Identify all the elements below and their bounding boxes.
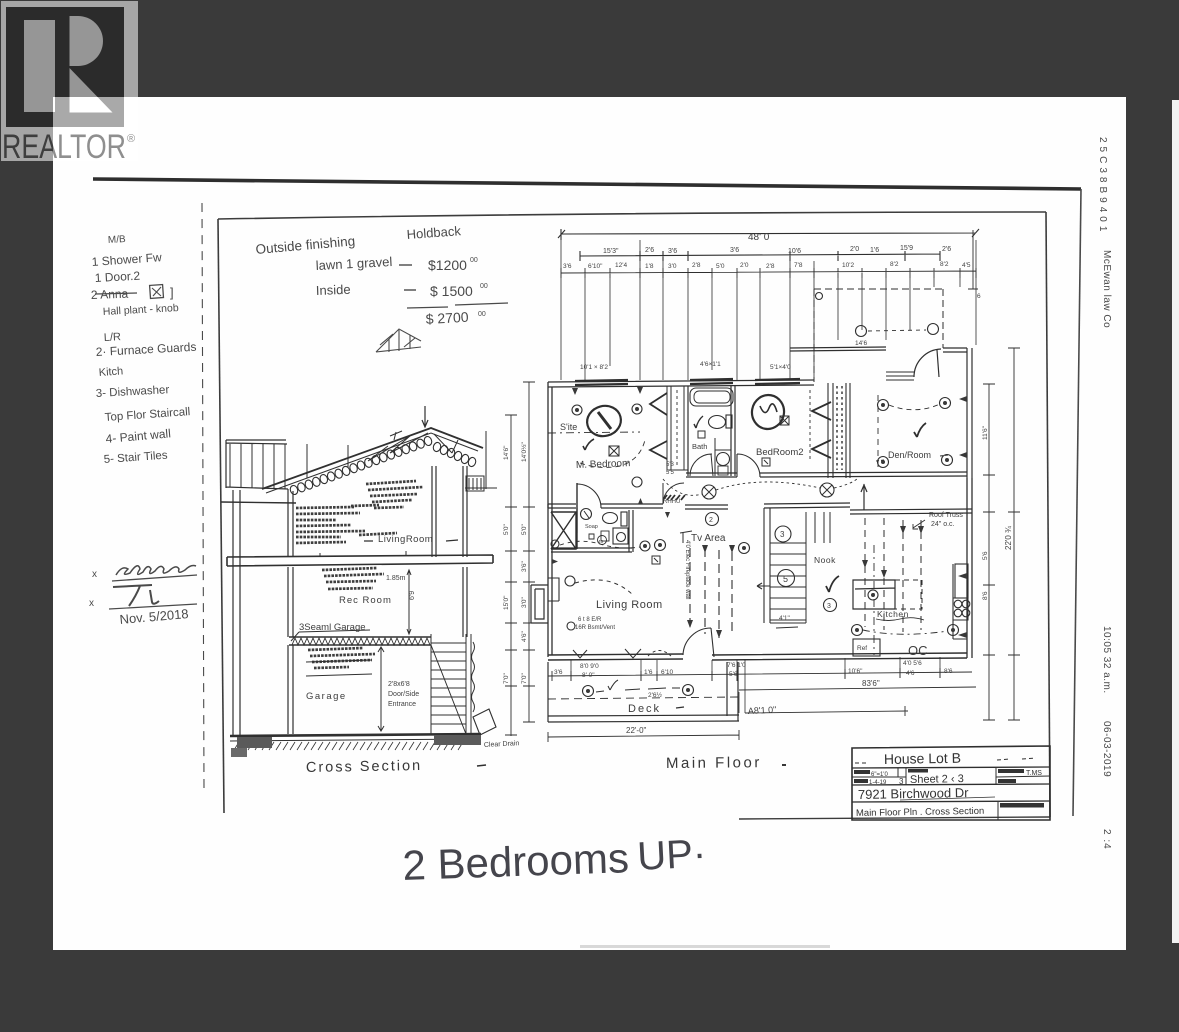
svg-text:Den/Room: Den/Room <box>888 450 931 460</box>
svg-text:14'6: 14'6 <box>855 340 867 347</box>
svg-text:4'1": 4'1" <box>779 615 790 622</box>
svg-text:2'6: 2'6 <box>645 247 654 254</box>
svg-text:Cross Section: Cross Section <box>306 758 423 776</box>
svg-text:5'0": 5'0" <box>503 524 510 535</box>
svg-text:14'0½": 14'0½" <box>520 441 528 462</box>
svg-text:UP·: UP· <box>636 831 707 879</box>
svg-text:83'6": 83'6" <box>862 679 880 688</box>
svg-text:8'2: 8'2 <box>890 261 899 268</box>
svg-text:8'6: 8'6 <box>944 668 953 675</box>
svg-text:6'9: 6'9 <box>409 591 416 600</box>
svg-text:24" o.c.: 24" o.c. <box>931 521 955 528</box>
svg-text:Sheet 2 ‹ 3: Sheet 2 ‹ 3 <box>910 773 964 786</box>
svg-text:4'6: 4'6 <box>906 670 915 677</box>
svg-text:10'1 × 8'2: 10'1 × 8'2 <box>580 364 608 371</box>
svg-text:2'8: 2'8 <box>766 263 775 270</box>
svg-text:12'4: 12'4 <box>615 262 627 269</box>
svg-text:A8'1 0": A8'1 0" <box>748 705 777 716</box>
svg-text:$ 1500: $ 1500 <box>430 283 473 299</box>
svg-text:8'2: 8'2 <box>940 261 949 268</box>
svg-text:Garage: Garage <box>306 691 347 702</box>
svg-text:2: 2 <box>709 517 713 524</box>
svg-text:3'6: 3'6 <box>554 669 563 676</box>
svg-text:00: 00 <box>470 257 478 264</box>
svg-text:2'6½: 2'6½ <box>648 691 662 699</box>
svg-text:5: 5 <box>783 574 788 584</box>
svg-text:4'0 Elec Fireplace wall: 4'0 Elec Fireplace wall <box>684 540 690 600</box>
svg-text:5'3: 5'3 <box>666 462 674 468</box>
svg-text:3: 3 <box>899 777 904 786</box>
svg-text:RHHU: RHHU <box>663 499 680 505</box>
svg-text:2'0: 2'0 <box>850 246 859 253</box>
svg-text:3'0": 3'0" <box>521 597 528 608</box>
svg-text:T.MS: T.MS <box>1026 770 1042 777</box>
svg-text:x: x <box>92 569 97 580</box>
svg-text:4'6": 4'6" <box>521 631 528 642</box>
svg-text:22'-0": 22'-0" <box>626 726 647 735</box>
svg-text:BedRoom2: BedRoom2 <box>756 447 804 458</box>
svg-text:6 t 8 E/R: 6 t 8 E/R <box>578 617 602 623</box>
svg-text:7'0": 7'0" <box>521 673 528 684</box>
svg-text:OC: OC <box>908 643 928 658</box>
svg-text:4'5: 4'5 <box>962 262 971 269</box>
svg-text:Main Floor: Main Floor <box>666 754 762 772</box>
svg-text:L/R: L/R <box>104 331 122 344</box>
svg-text:4'6×1'1: 4'6×1'1 <box>700 361 721 368</box>
svg-text:5'6: 5'6 <box>982 551 989 560</box>
svg-text:McEwan law Co: McEwan law Co <box>1101 250 1112 328</box>
svg-text:Living Room: Living Room <box>596 599 663 611</box>
svg-text:14'6": 14'6" <box>503 445 510 460</box>
svg-text:06-03-2019: 06-03-2019 <box>1101 721 1112 777</box>
svg-text:M/B: M/B <box>108 234 127 246</box>
svg-text:15'9: 15'9 <box>900 245 913 252</box>
svg-text:Door/Side: Door/Side <box>388 691 419 698</box>
svg-text:Kitch: Kitch <box>98 365 123 379</box>
svg-text:1-4-19: 1-4-19 <box>869 780 887 786</box>
svg-text:2'6: 2'6 <box>942 246 951 253</box>
svg-text:5'0": 5'0" <box>521 524 528 535</box>
svg-text:Main Floor Pln . Cross Section: Main Floor Pln . Cross Section <box>856 806 984 819</box>
svg-text:3'6: 3'6 <box>563 263 572 270</box>
svg-text:7'6 1'0: 7'6 1'0 <box>727 662 746 669</box>
svg-text:]: ] <box>170 285 174 300</box>
svg-text:Soap: Soap <box>585 524 598 530</box>
svg-text:3: 3 <box>780 530 785 539</box>
svg-text:Ref: Ref <box>857 645 867 652</box>
svg-text:LivingRoom: LivingRoom <box>378 534 433 545</box>
svg-text:5'1×4'0: 5'1×4'0 <box>770 364 791 371</box>
svg-text:15'0": 15'0" <box>503 595 510 610</box>
svg-text:2'0: 2'0 <box>740 262 749 269</box>
svg-text:1'6: 1'6 <box>644 669 653 676</box>
svg-text:Bath: Bath <box>692 442 707 451</box>
svg-text:2 :4: 2 :4 <box>1101 829 1112 850</box>
svg-text:1 Door.2: 1 Door.2 <box>94 269 140 285</box>
svg-text:00: 00 <box>480 283 488 290</box>
svg-text:10:05 32 a.m.: 10:05 32 a.m. <box>1101 626 1112 694</box>
svg-text:6'10: 6'10 <box>661 669 673 676</box>
svg-text:$ 2700: $ 2700 <box>425 309 469 327</box>
svg-text:00: 00 <box>478 311 486 318</box>
svg-text:22'0 ¾: 22'0 ¾ <box>1004 526 1013 550</box>
svg-text:Inside: Inside <box>316 282 351 298</box>
svg-text:Deck: Deck <box>628 703 661 715</box>
svg-text:2 Bedrooms: 2 Bedrooms <box>402 834 630 889</box>
svg-text:2'8: 2'8 <box>692 262 701 269</box>
svg-text:10'6: 10'6 <box>788 248 801 255</box>
svg-text:x: x <box>89 598 94 609</box>
svg-text:10'6": 10'6" <box>848 668 863 675</box>
svg-text:Entrance: Entrance <box>388 701 416 708</box>
svg-text:5'0: 5'0 <box>716 263 725 270</box>
svg-text:6: 6 <box>977 293 981 300</box>
svg-text:3'6: 3'6 <box>730 247 739 254</box>
svg-text:Kitchen: Kitchen <box>877 609 909 619</box>
svg-text:3'6: 3'6 <box>668 248 677 255</box>
svg-text:5'5: 5'5 <box>666 470 674 476</box>
svg-text:8'6: 8'6 <box>982 591 989 600</box>
svg-text:10'2: 10'2 <box>842 262 854 269</box>
svg-text:25C38B9401: 25C38B9401 <box>1097 137 1108 235</box>
svg-text:16R Bsmt/Vent: 16R Bsmt/Vent <box>575 625 615 631</box>
svg-text:S'ite: S'ite <box>560 422 577 432</box>
svg-text:6'10": 6'10" <box>588 263 603 270</box>
svg-text:11'6": 11'6" <box>982 425 989 440</box>
svg-text:3: 3 <box>827 603 831 610</box>
svg-text:1'8: 1'8 <box>645 263 654 270</box>
svg-text:7'8: 7'8 <box>794 262 803 269</box>
svg-text:45: 45 <box>598 539 604 544</box>
svg-text:7'0": 7'0" <box>503 673 510 684</box>
svg-text:3'6": 3'6" <box>521 561 528 572</box>
svg-text:6"=1'0: 6"=1'0 <box>871 772 888 778</box>
svg-text:4'0 5'6: 4'0 5'6 <box>903 660 922 667</box>
svg-text:House Lot B: House Lot B <box>884 750 961 767</box>
svg-text:3'0: 3'0 <box>668 263 677 270</box>
svg-text:Rec Room: Rec Room <box>339 595 392 606</box>
svg-text:15'3": 15'3" <box>603 248 619 255</box>
svg-text:5'6: 5'6 <box>729 671 738 678</box>
svg-text:48' 0: 48' 0 <box>748 232 770 243</box>
svg-text:1'6: 1'6 <box>870 247 879 254</box>
svg-text:8' 0": 8' 0" <box>582 672 595 679</box>
svg-text:8'0 9'0: 8'0 9'0 <box>580 663 599 670</box>
svg-text:Nook: Nook <box>814 555 836 565</box>
svg-text:$1200: $1200 <box>428 257 467 273</box>
svg-text:2'8x6'8: 2'8x6'8 <box>388 681 410 688</box>
svg-text:Tv Area: Tv Area <box>691 533 726 544</box>
svg-text:®: ® <box>127 133 135 145</box>
svg-text:1.85m: 1.85m <box>386 575 406 582</box>
